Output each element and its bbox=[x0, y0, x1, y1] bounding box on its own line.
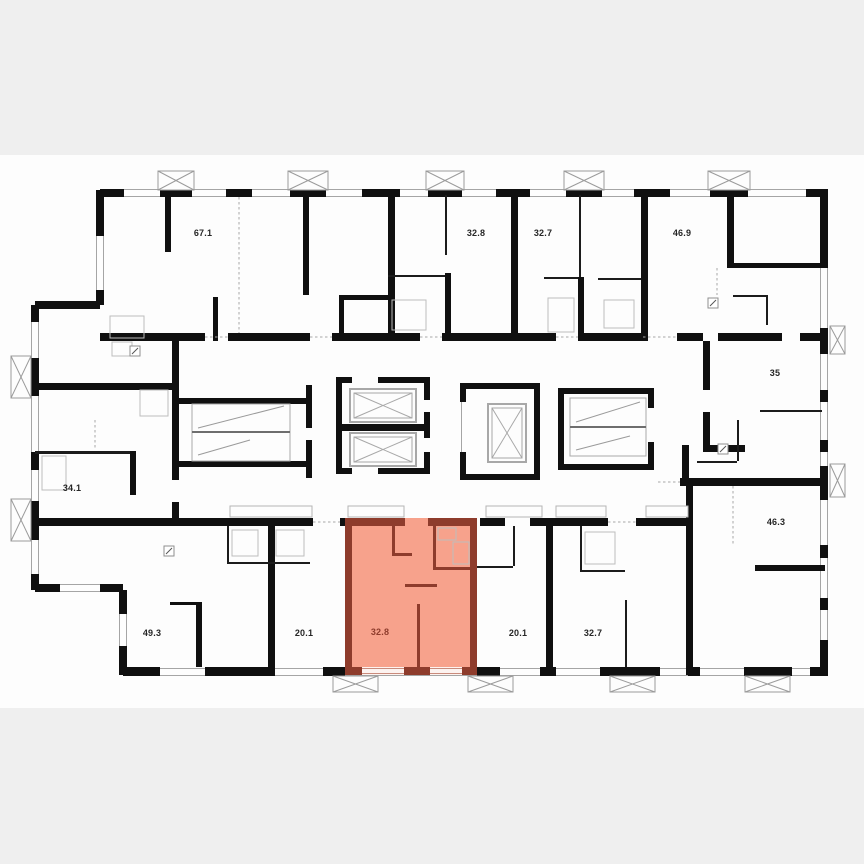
elevator-shaft-2 bbox=[350, 433, 416, 466]
floorplan-canvas: 67.1 32.8 32.7 46.9 35 34.1 46.3 49.3 20… bbox=[0, 0, 864, 864]
unit-area-label: 49.3 bbox=[143, 628, 161, 638]
unit-area-label: 46.3 bbox=[767, 517, 785, 527]
elevator-shaft-1 bbox=[350, 389, 416, 422]
unit-area-label: 46.9 bbox=[673, 228, 691, 238]
unit-area-label: 67.1 bbox=[194, 228, 212, 238]
elevator-core-double bbox=[336, 377, 430, 474]
elevator-shaft-3 bbox=[488, 404, 526, 462]
unit-area-label: 20.1 bbox=[295, 628, 313, 638]
unit-area-label: 34.1 bbox=[63, 483, 81, 493]
unit-area-label-highlighted[interactable]: 32.8 bbox=[371, 627, 389, 637]
highlighted-unit[interactable] bbox=[345, 518, 477, 675]
background bbox=[0, 0, 864, 864]
unit-area-label: 32.8 bbox=[467, 228, 485, 238]
floorplan-svg bbox=[0, 0, 864, 864]
unit-area-label: 20.1 bbox=[509, 628, 527, 638]
unit-area-label: 32.7 bbox=[534, 228, 552, 238]
unit-area-label: 35 bbox=[770, 368, 780, 378]
unit-area-label: 32.7 bbox=[584, 628, 602, 638]
